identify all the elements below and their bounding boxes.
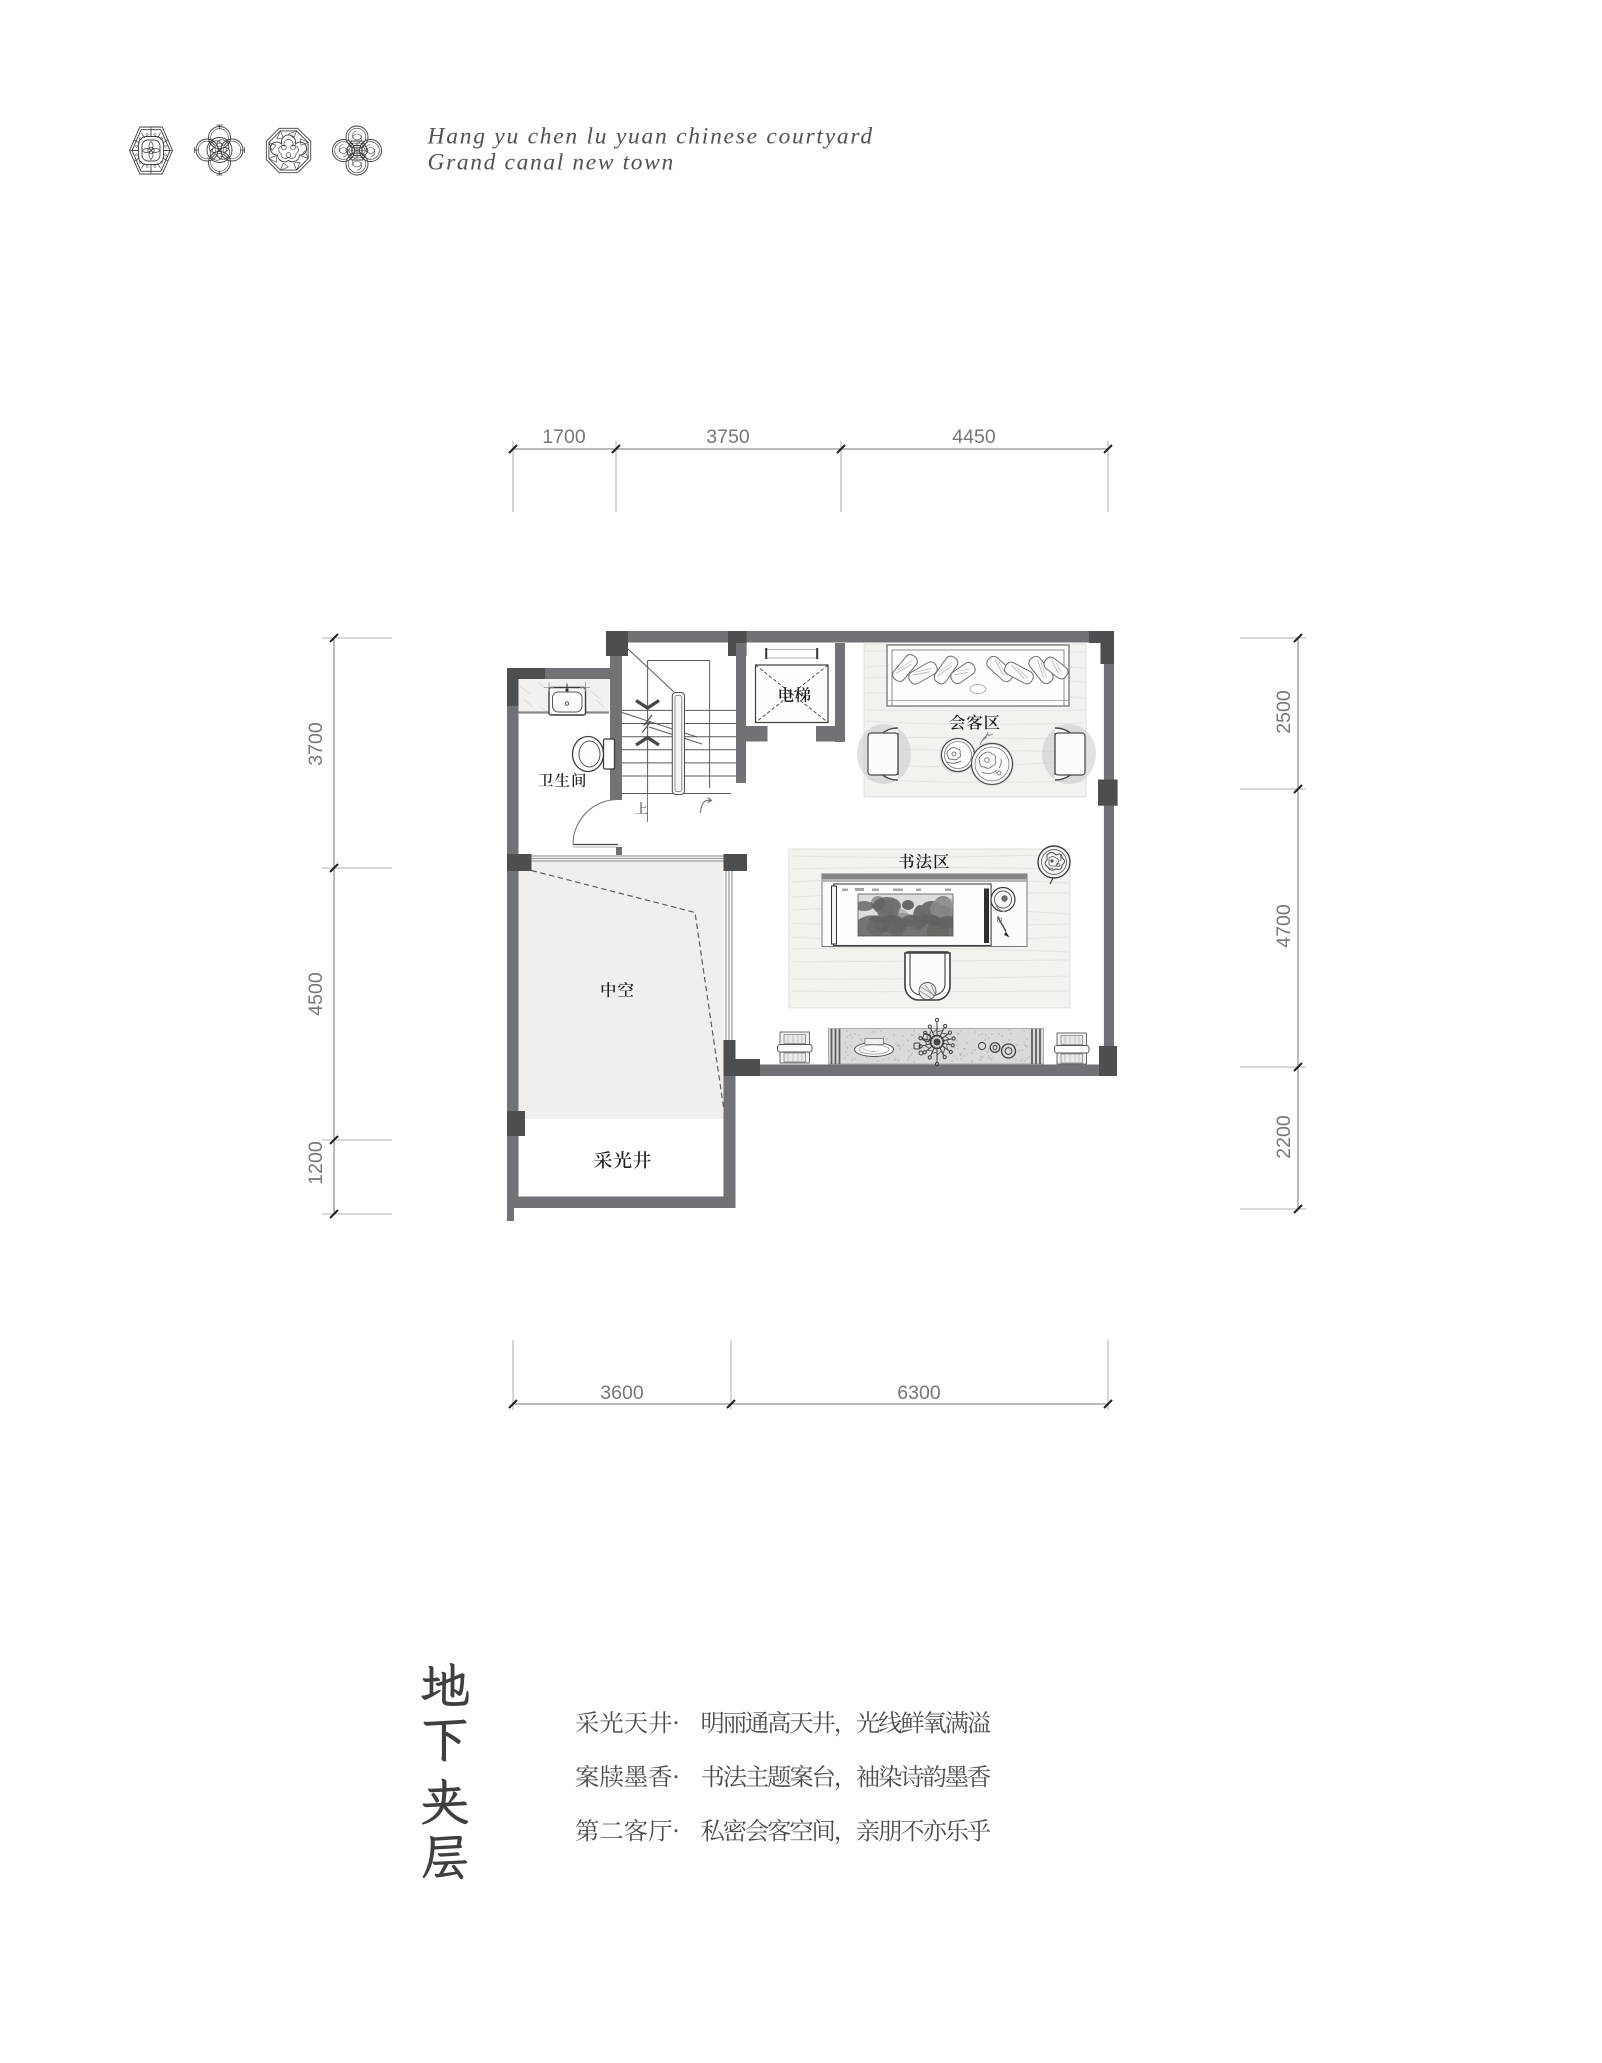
svg-text:4500: 4500: [305, 972, 327, 1016]
svg-text:4450: 4450: [952, 426, 996, 448]
svg-text:4700: 4700: [1273, 904, 1295, 948]
svg-text:3600: 3600: [600, 1382, 644, 1404]
svg-text:1700: 1700: [542, 426, 586, 448]
svg-text:Hang yu chen lu yuan chinese c: Hang yu chen lu yuan chinese courtyard: [427, 124, 874, 150]
svg-text:3750: 3750: [706, 426, 750, 448]
svg-text:1200: 1200: [305, 1141, 327, 1185]
svg-text:3700: 3700: [305, 722, 327, 766]
svg-text:6300: 6300: [897, 1382, 941, 1404]
svg-text:2500: 2500: [1273, 690, 1295, 734]
svg-text:Grand canal new town: Grand canal new town: [428, 150, 675, 176]
svg-text:2200: 2200: [1273, 1115, 1295, 1159]
